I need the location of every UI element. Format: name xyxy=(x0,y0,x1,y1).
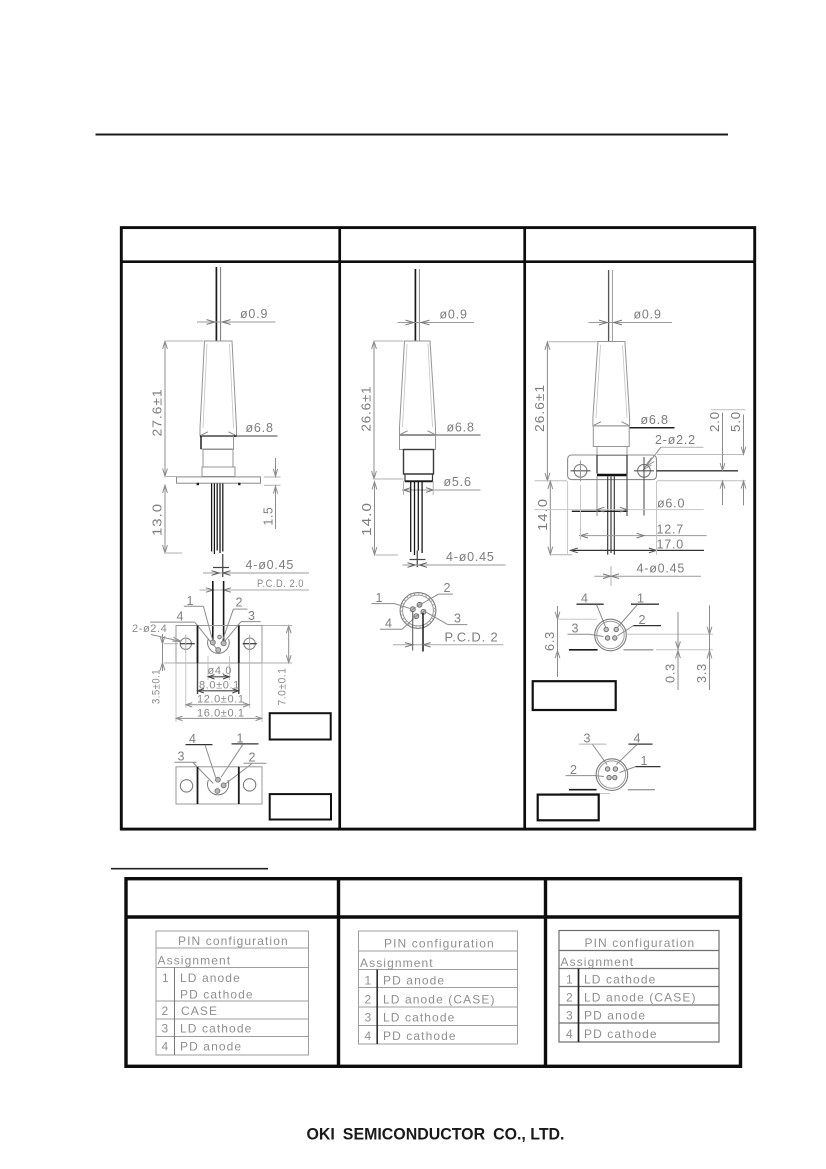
svg-text:2-ø2.2: 2-ø2.2 xyxy=(655,433,696,447)
svg-text:CASE: CASE xyxy=(181,1004,218,1018)
svg-text:4: 4 xyxy=(177,610,184,624)
svg-text:2: 2 xyxy=(249,751,256,765)
svg-text:ø0.9: ø0.9 xyxy=(440,308,468,322)
svg-text:1: 1 xyxy=(376,591,383,605)
svg-text:3.3: 3.3 xyxy=(695,663,709,683)
svg-text:PD anode: PD anode xyxy=(584,1009,646,1023)
svg-text:4-ø0.45: 4-ø0.45 xyxy=(246,558,295,572)
svg-text:4: 4 xyxy=(365,1029,373,1043)
svg-text:P.C.D. 2: P.C.D. 2 xyxy=(445,631,499,645)
svg-text:1: 1 xyxy=(641,754,648,768)
svg-text:PIN configuration: PIN configuration xyxy=(384,937,495,951)
svg-text:LD cathode: LD cathode xyxy=(584,973,656,987)
svg-text:P.C.D. 2.0: P.C.D. 2.0 xyxy=(257,578,304,590)
svg-text:4-ø0.45: 4-ø0.45 xyxy=(446,550,495,564)
svg-text:4: 4 xyxy=(566,1027,574,1041)
svg-text:12.0±0.1: 12.0±0.1 xyxy=(197,694,245,706)
svg-text:27.6±1: 27.6±1 xyxy=(151,389,165,437)
svg-text:7.0±0.1: 7.0±0.1 xyxy=(277,668,289,706)
svg-text:2: 2 xyxy=(639,613,646,627)
svg-text:1: 1 xyxy=(365,974,373,988)
svg-text:PD anode: PD anode xyxy=(383,974,445,988)
svg-text:PD cathode: PD cathode xyxy=(584,1027,658,1041)
svg-text:ø0.9: ø0.9 xyxy=(634,308,662,322)
svg-text:PIN configuration: PIN configuration xyxy=(585,936,696,950)
svg-text:3: 3 xyxy=(566,1009,574,1023)
svg-text:14.0: 14.0 xyxy=(536,498,550,531)
svg-text:PD cathode: PD cathode xyxy=(383,1029,457,1043)
svg-text:Assignment: Assignment xyxy=(561,955,635,969)
svg-text:13.0: 13.0 xyxy=(151,503,165,536)
svg-text:1: 1 xyxy=(637,592,644,606)
svg-text:ø6.8: ø6.8 xyxy=(641,413,669,427)
svg-text:26.6±1: 26.6±1 xyxy=(533,384,547,432)
svg-text:4: 4 xyxy=(162,1040,170,1054)
svg-text:PIN configuration: PIN configuration xyxy=(178,934,289,948)
svg-text:4: 4 xyxy=(189,732,196,746)
svg-text:3: 3 xyxy=(454,612,461,626)
svg-text:4: 4 xyxy=(634,732,641,746)
svg-text:OKI SEMICONDUCTOR CO., LTD.: OKI SEMICONDUCTOR CO., LTD. xyxy=(307,1125,565,1144)
svg-text:2.0: 2.0 xyxy=(708,411,722,432)
svg-text:3: 3 xyxy=(248,609,255,623)
svg-text:LD anode (CASE): LD anode (CASE) xyxy=(383,993,496,1007)
svg-text:3.5±0.1: 3.5±0.1 xyxy=(151,669,163,704)
svg-text:26.6±1: 26.6±1 xyxy=(360,386,374,432)
svg-text:8.0±0.1: 8.0±0.1 xyxy=(199,680,240,692)
svg-text:2: 2 xyxy=(236,596,243,610)
svg-text:2: 2 xyxy=(570,763,577,777)
svg-text:1.5: 1.5 xyxy=(262,507,276,526)
svg-text:3: 3 xyxy=(584,732,591,746)
svg-text:3: 3 xyxy=(162,1022,170,1036)
svg-text:16.0±0.1: 16.0±0.1 xyxy=(197,708,245,720)
svg-text:2: 2 xyxy=(444,581,451,595)
svg-text:4-ø0.45: 4-ø0.45 xyxy=(637,562,686,576)
svg-text:3: 3 xyxy=(365,1011,373,1025)
svg-text:1: 1 xyxy=(187,594,194,608)
svg-text:LD cathode: LD cathode xyxy=(383,1011,455,1025)
svg-text:0.3: 0.3 xyxy=(664,663,678,683)
svg-text:ø5.6: ø5.6 xyxy=(444,475,472,489)
svg-text:5.0: 5.0 xyxy=(729,411,743,432)
svg-text:ø6.0: ø6.0 xyxy=(657,497,685,511)
svg-text:2: 2 xyxy=(566,991,574,1005)
svg-text:Assignment: Assignment xyxy=(360,956,434,970)
svg-text:1: 1 xyxy=(162,971,170,985)
svg-text:1: 1 xyxy=(566,973,574,987)
svg-text:2: 2 xyxy=(365,993,373,1007)
svg-text:2-ø2.4: 2-ø2.4 xyxy=(132,623,167,635)
svg-text:ø0.9: ø0.9 xyxy=(240,307,268,321)
svg-text:14.0: 14.0 xyxy=(360,502,374,536)
svg-text:ø6.8: ø6.8 xyxy=(246,421,274,435)
svg-text:LD anode: LD anode xyxy=(180,971,241,985)
svg-text:ø6.8: ø6.8 xyxy=(447,421,475,435)
svg-text:3: 3 xyxy=(572,622,579,636)
svg-text:Assignment: Assignment xyxy=(158,954,232,968)
svg-text:PD cathode: PD cathode xyxy=(180,988,254,1002)
svg-text:LD anode (CASE): LD anode (CASE) xyxy=(584,991,697,1005)
svg-text:PD anode: PD anode xyxy=(180,1040,242,1054)
svg-text:ø4.0: ø4.0 xyxy=(208,665,232,677)
svg-text:4: 4 xyxy=(385,617,392,631)
svg-text:2: 2 xyxy=(162,1004,170,1018)
svg-text:17.0: 17.0 xyxy=(657,538,685,552)
svg-text:4: 4 xyxy=(581,592,588,606)
svg-text:LD cathode: LD cathode xyxy=(180,1022,252,1036)
svg-text:3: 3 xyxy=(178,750,185,764)
svg-text:1: 1 xyxy=(237,732,244,746)
svg-text:12.7: 12.7 xyxy=(657,523,685,537)
svg-text:6.3: 6.3 xyxy=(543,631,557,651)
